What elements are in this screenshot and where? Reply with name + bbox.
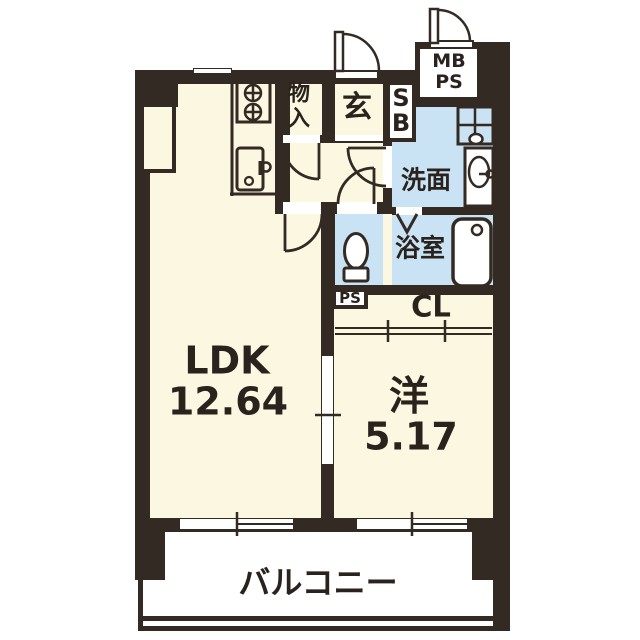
bathroom-label: 浴室: [395, 235, 445, 262]
washroom-door-arc: [348, 148, 386, 186]
entrance-label: 玄: [342, 92, 372, 124]
ldk-label: LDK: [184, 340, 269, 381]
folding-door-icon: [397, 214, 417, 232]
floor-plan: LDK 12.64 洋 5.17 バルコニー 洗面 浴室 玄 物 入 S B M…: [0, 0, 640, 640]
western-room-area-value: 5.17: [364, 416, 458, 457]
washer-pan-icon: [458, 107, 493, 144]
shoe-box-label: S B: [392, 86, 410, 136]
meter-box-door-arc: [430, 9, 470, 43]
ldk-area-value: 12.64: [168, 381, 288, 422]
pipe-space-label: PS: [339, 290, 361, 306]
toilet-door-arc: [338, 168, 374, 204]
toilet-icon: [344, 234, 368, 282]
storage-label: 物 入: [288, 82, 310, 131]
ldk-door-arc: [285, 214, 322, 251]
stove-icon: [237, 80, 270, 122]
kitchen-sink-icon: [237, 148, 271, 190]
bathtub-icon: [453, 219, 491, 286]
meter-box-label: MB PS: [432, 51, 465, 93]
washroom-label: 洗面: [401, 167, 451, 194]
storage-door-arc: [283, 143, 319, 179]
entrance-door-arc: [335, 32, 379, 71]
closet-label: CL: [411, 291, 451, 322]
fixtures-layer: [0, 0, 640, 640]
balcony-label: バルコニー: [238, 566, 397, 601]
wash-basin-icon: [465, 148, 494, 206]
western-room-label: 洋: [389, 375, 429, 418]
